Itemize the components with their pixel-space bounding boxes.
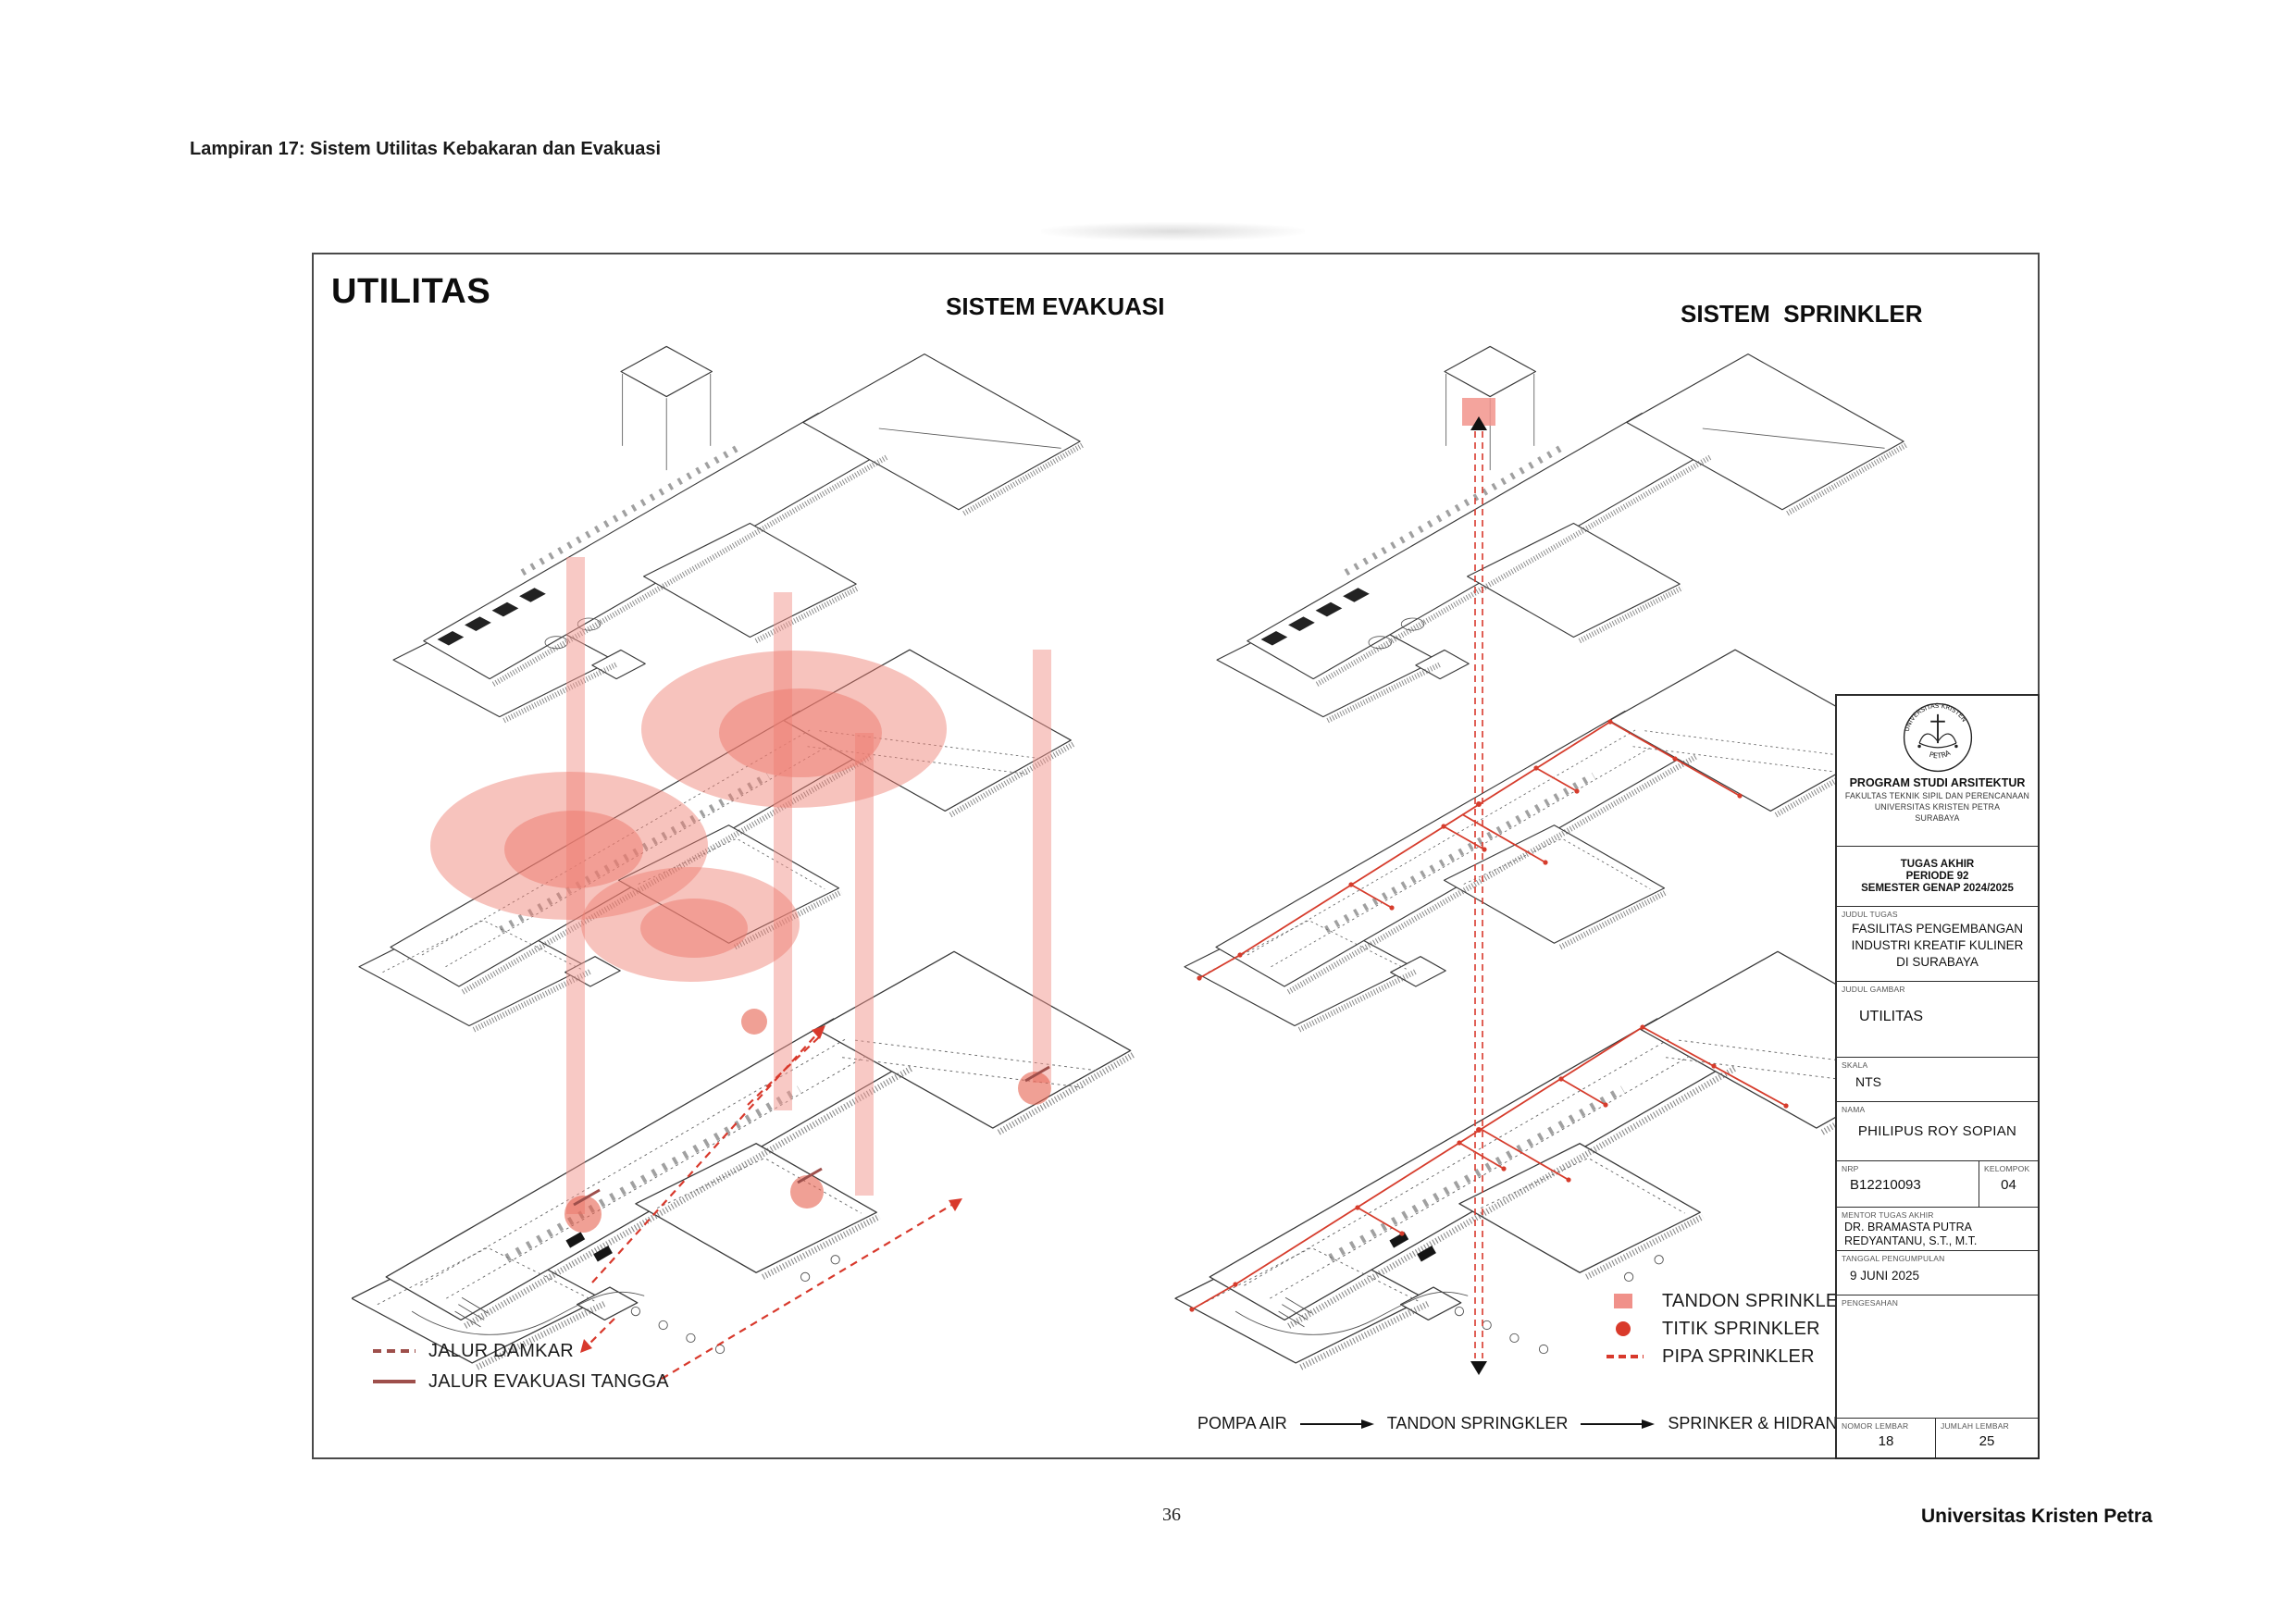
sprinkler-legend: TANDON SPRINKLER TITIK SPRINKLER PIPA SP… xyxy=(1606,1290,1852,1368)
legend-item: JALUR DAMKAR xyxy=(373,1340,669,1362)
nama-value: PHILIPUS ROY SOPIAN xyxy=(1837,1123,2038,1139)
dashed-line-swatch-icon xyxy=(373,1349,416,1353)
legend-item: TITIK SPRINKLER xyxy=(1606,1318,1852,1340)
city-name: SURABAYA xyxy=(1915,813,1959,823)
jumlah-lembar-cell: JUMLAH LEMBAR 25 xyxy=(1935,1419,2038,1457)
institution-section: UNIVERSITAS KRISTEN PETRA PROGRAM STUDI … xyxy=(1837,696,2038,846)
field-label: NAMA xyxy=(1837,1102,2038,1114)
seal-text-top: UNIVERSITAS KRISTEN xyxy=(1903,702,1967,733)
legend-label: TANDON SPRINKLER xyxy=(1662,1291,1852,1312)
skala-value: NTS xyxy=(1837,1074,2038,1089)
square-swatch-icon xyxy=(1614,1294,1632,1308)
judul-tugas-section: JUDUL TUGAS FASILITAS PENGEMBANGAN INDUS… xyxy=(1837,906,2038,981)
flow-step: TANDON SPRINGKLER xyxy=(1387,1414,1569,1433)
field-label: JUDUL TUGAS xyxy=(1837,907,2038,919)
jumlah-lembar-value: 25 xyxy=(1936,1433,2038,1449)
pengesahan-section: PENGESAHAN xyxy=(1837,1295,2038,1418)
judul-tugas-line: FASILITAS PENGEMBANGAN xyxy=(1837,921,2038,937)
project-line: PERIODE 92 xyxy=(1837,871,2038,882)
scan-artifact xyxy=(1041,222,1305,241)
page-number: 36 xyxy=(1162,1505,1181,1526)
field-label: NOMOR LEMBAR xyxy=(1837,1419,1935,1431)
mentor-section: MENTOR TUGAS AKHIR DR. BRAMASTA PUTRA RE… xyxy=(1837,1207,2038,1250)
lembar-section: NOMOR LEMBAR 18 JUMLAH LEMBAR 25 xyxy=(1837,1418,2038,1457)
solid-line-swatch-icon xyxy=(373,1380,416,1383)
project-section: TUGAS AKHIR PERIODE 92 SEMESTER GENAP 20… xyxy=(1837,846,2038,906)
kelompok-value: 04 xyxy=(1979,1177,2038,1193)
project-line: SEMESTER GENAP 2024/2025 xyxy=(1837,883,2038,894)
kelompok-cell: KELOMPOK 04 xyxy=(1979,1161,2038,1207)
sprinkler-flow-diagram: POMPA AIR TANDON SPRINGKLER SPRINKER & H… xyxy=(1197,1414,1943,1433)
field-label: SKALA xyxy=(1837,1058,2038,1070)
evakuasi-legend: JALUR DAMKAR JALUR EVAKUASI TANGGA xyxy=(373,1340,669,1393)
sheet-title: UTILITAS xyxy=(331,272,490,312)
field-label: NRP xyxy=(1837,1161,1979,1173)
field-label: MENTOR TUGAS AKHIR xyxy=(1837,1208,2038,1220)
program-name: PROGRAM STUDI ARSITEKTUR xyxy=(1850,776,2026,789)
svg-text:UNIVERSITAS KRISTEN: UNIVERSITAS KRISTEN xyxy=(1903,702,1967,733)
university-name: UNIVERSITAS KRISTEN PETRA xyxy=(1875,802,2000,812)
legend-label: TITIK SPRINKLER xyxy=(1662,1319,1820,1340)
field-label: TANGGAL PENGUMPULAN xyxy=(1837,1251,2038,1263)
skala-section: SKALA NTS xyxy=(1837,1057,2038,1101)
dashed-line-swatch-icon xyxy=(1606,1355,1644,1358)
sprinkler-roof-level xyxy=(1217,346,1906,720)
judul-gambar-value: UTILITAS xyxy=(1837,1009,2038,1025)
legend-label: PIPA SPRINKLER xyxy=(1662,1346,1815,1368)
dot-swatch-icon xyxy=(1616,1321,1631,1336)
flow-arrow-icon xyxy=(1581,1419,1655,1430)
nrp-kelompok-section: NRP B12210093 KELOMPOK 04 xyxy=(1837,1160,2038,1207)
footer-brand: Universitas Kristen Petra xyxy=(1921,1506,2152,1528)
field-label: JUDUL GAMBAR xyxy=(1837,982,2038,994)
field-label: PENGESAHAN xyxy=(1837,1295,2038,1308)
nrp-cell: NRP B12210093 xyxy=(1837,1161,1979,1207)
legend-item: JALUR EVAKUASI TANGGA xyxy=(373,1370,669,1393)
evakuasi-axonometric-drawing xyxy=(352,315,1166,1397)
appendix-title: Lampiran 17: Sistem Utilitas Kebakaran d… xyxy=(190,139,661,160)
legend-label: JALUR EVAKUASI TANGGA xyxy=(428,1371,669,1393)
faculty-name: FAKULTAS TEKNIK SIPIL DAN PERENCANAAN xyxy=(1845,791,2029,800)
nama-section: NAMA PHILIPUS ROY SOPIAN xyxy=(1837,1101,2038,1160)
document-page: Lampiran 17: Sistem Utilitas Kebakaran d… xyxy=(0,0,2295,1624)
judul-tugas-line: INDUSTRI KREATIF KULINER xyxy=(1837,937,2038,954)
tanggal-value: 9 JUNI 2025 xyxy=(1837,1269,2038,1283)
judul-tugas-line: DI SURABAYA xyxy=(1837,954,2038,971)
tanggal-section: TANGGAL PENGUMPULAN 9 JUNI 2025 xyxy=(1837,1250,2038,1295)
nrp-value: B12210093 xyxy=(1837,1177,1979,1193)
legend-item: PIPA SPRINKLER xyxy=(1606,1345,1852,1368)
field-label: JUMLAH LEMBAR xyxy=(1936,1419,2038,1431)
flow-arrow-icon xyxy=(1300,1419,1374,1430)
field-label: KELOMPOK xyxy=(1979,1161,2038,1173)
seal-text-bottom: PETRA xyxy=(1928,749,1952,761)
legend-item: TANDON SPRINKLER xyxy=(1606,1290,1852,1312)
judul-gambar-section: JUDUL GAMBAR UTILITAS xyxy=(1837,981,2038,1057)
legend-label: JALUR DAMKAR xyxy=(428,1341,574,1362)
mentor-line: REDYANTANU, S.T., M.T. xyxy=(1844,1234,2038,1248)
nomor-lembar-value: 18 xyxy=(1837,1433,1935,1449)
flow-step: POMPA AIR xyxy=(1197,1414,1287,1433)
nomor-lembar-cell: NOMOR LEMBAR 18 xyxy=(1837,1419,1935,1457)
project-line: TUGAS AKHIR xyxy=(1837,859,2038,870)
mentor-line: DR. BRAMASTA PUTRA xyxy=(1844,1221,2038,1234)
university-seal-icon: UNIVERSITAS KRISTEN PETRA xyxy=(1902,701,1974,774)
title-block: UNIVERSITAS KRISTEN PETRA PROGRAM STUDI … xyxy=(1835,694,2040,1459)
svg-text:PETRA: PETRA xyxy=(1928,749,1952,761)
